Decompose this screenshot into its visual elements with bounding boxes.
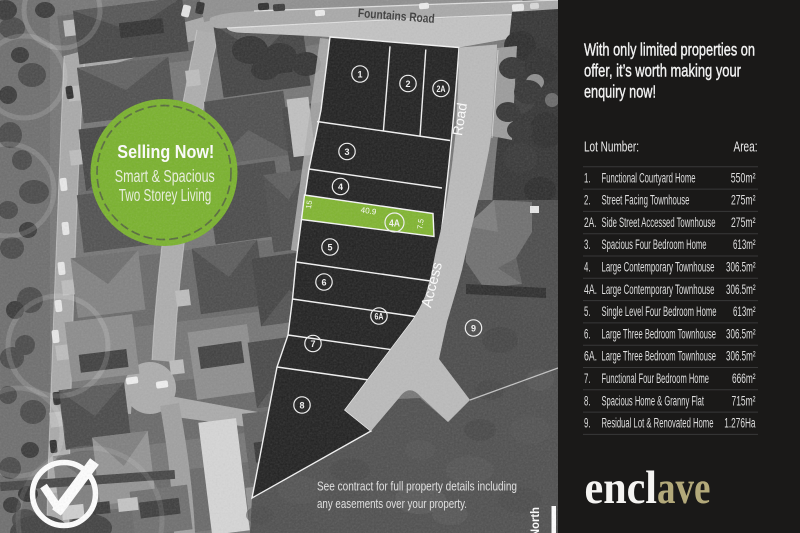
- svg-text:Area:: Area:: [734, 140, 758, 156]
- svg-text:275m²: 275m²: [731, 215, 756, 230]
- svg-text:9.: 9.: [584, 416, 591, 431]
- svg-text:With only limited properties o: With only limited properties on: [584, 40, 755, 60]
- svg-text:Side Street Accessed Townhouse: Side Street Accessed Townhouse: [602, 215, 716, 230]
- svg-text:306.5m²: 306.5m²: [726, 282, 756, 297]
- svg-text:Functional Four Bedroom Home: Functional Four Bedroom Home: [602, 371, 710, 386]
- svg-text:550m²: 550m²: [731, 170, 756, 185]
- svg-text:5.: 5.: [584, 304, 591, 319]
- svg-text:7.: 7.: [584, 371, 591, 386]
- svg-text:Spacious Home & Granny Flat: Spacious Home & Granny Flat: [602, 393, 705, 408]
- svg-text:Functional Courtyard Home: Functional Courtyard Home: [602, 170, 696, 185]
- svg-text:Single Level Four Bedroom Home: Single Level Four Bedroom Home: [602, 304, 717, 319]
- svg-text:275m²: 275m²: [731, 193, 756, 208]
- svg-text:3.: 3.: [584, 237, 591, 252]
- svg-text:Lot Number:: Lot Number:: [584, 140, 639, 156]
- svg-text:1.276Ha: 1.276Ha: [724, 416, 755, 431]
- svg-text:2.: 2.: [584, 193, 591, 208]
- svg-text:enquiry now!: enquiry now!: [584, 82, 656, 102]
- svg-text:ave: ave: [657, 462, 711, 514]
- svg-text:Spacious Four Bedroom Home: Spacious Four Bedroom Home: [602, 237, 707, 252]
- svg-text:4A.: 4A.: [584, 282, 597, 297]
- svg-text:encl: encl: [585, 462, 658, 514]
- svg-text:Large Three Bedroom Townhouse: Large Three Bedroom Townhouse: [602, 349, 717, 364]
- svg-text:1.: 1.: [584, 170, 591, 185]
- svg-text:306.5m²: 306.5m²: [726, 349, 756, 364]
- svg-text:6A.: 6A.: [584, 349, 597, 364]
- svg-text:715m²: 715m²: [732, 393, 756, 408]
- svg-text:Residual Lot & Renovated Home: Residual Lot & Renovated Home: [602, 416, 714, 431]
- svg-text:Large Contemporary Townhouse: Large Contemporary Townhouse: [602, 260, 715, 275]
- svg-text:4.: 4.: [584, 260, 591, 275]
- svg-text:Large Three Bedroom Townhouse: Large Three Bedroom Townhouse: [602, 326, 717, 341]
- svg-text:306.5m²: 306.5m²: [726, 326, 756, 341]
- svg-text:2A.: 2A.: [584, 215, 597, 230]
- svg-text:8.: 8.: [584, 393, 591, 408]
- svg-text:306.5m²: 306.5m²: [726, 260, 756, 275]
- svg-text:Large Contemporary Townhouse: Large Contemporary Townhouse: [602, 282, 715, 297]
- svg-text:Street Facing Townhouse: Street Facing Townhouse: [602, 193, 690, 208]
- svg-text:613m²: 613m²: [733, 304, 756, 319]
- svg-text:613m²: 613m²: [733, 237, 756, 252]
- svg-text:offer, it’s worth making your: offer, it’s worth making your: [584, 61, 741, 81]
- svg-text:666m²: 666m²: [732, 371, 756, 386]
- svg-text:6.: 6.: [584, 326, 591, 341]
